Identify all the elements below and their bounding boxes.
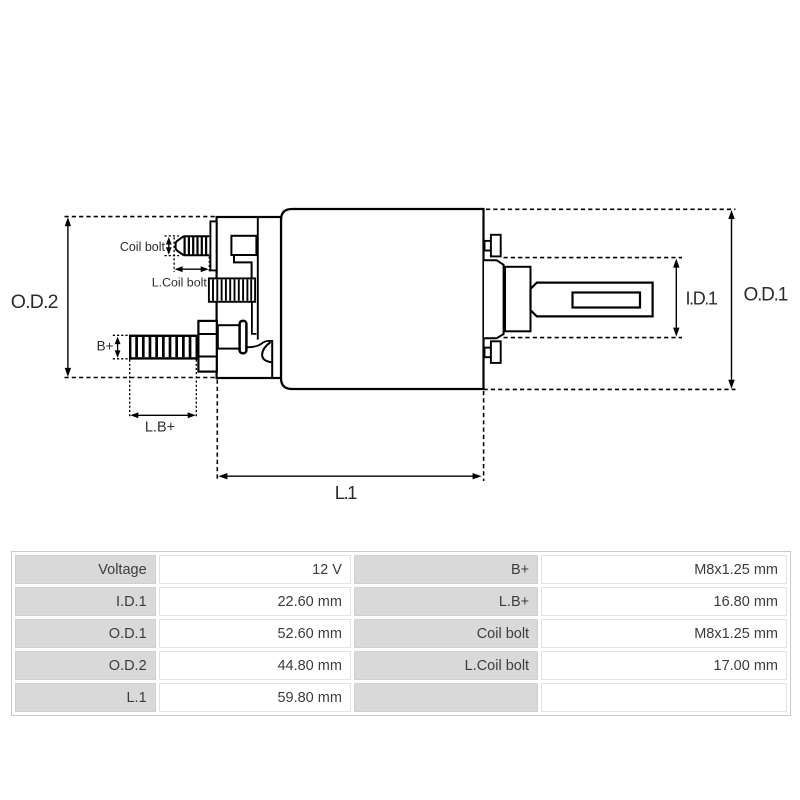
svg-text:Coil bolt: Coil bolt [120,240,166,254]
svg-text:O.D.1: O.D.1 [744,285,788,306]
svg-text:L.1: L.1 [335,482,357,503]
svg-text:O.D.2: O.D.2 [11,291,58,313]
svg-text:L.B+: L.B+ [145,420,175,436]
svg-text:I.D.1: I.D.1 [686,289,718,309]
svg-text:B+: B+ [97,339,114,354]
svg-text:L.Coil bolt: L.Coil bolt [152,276,208,290]
